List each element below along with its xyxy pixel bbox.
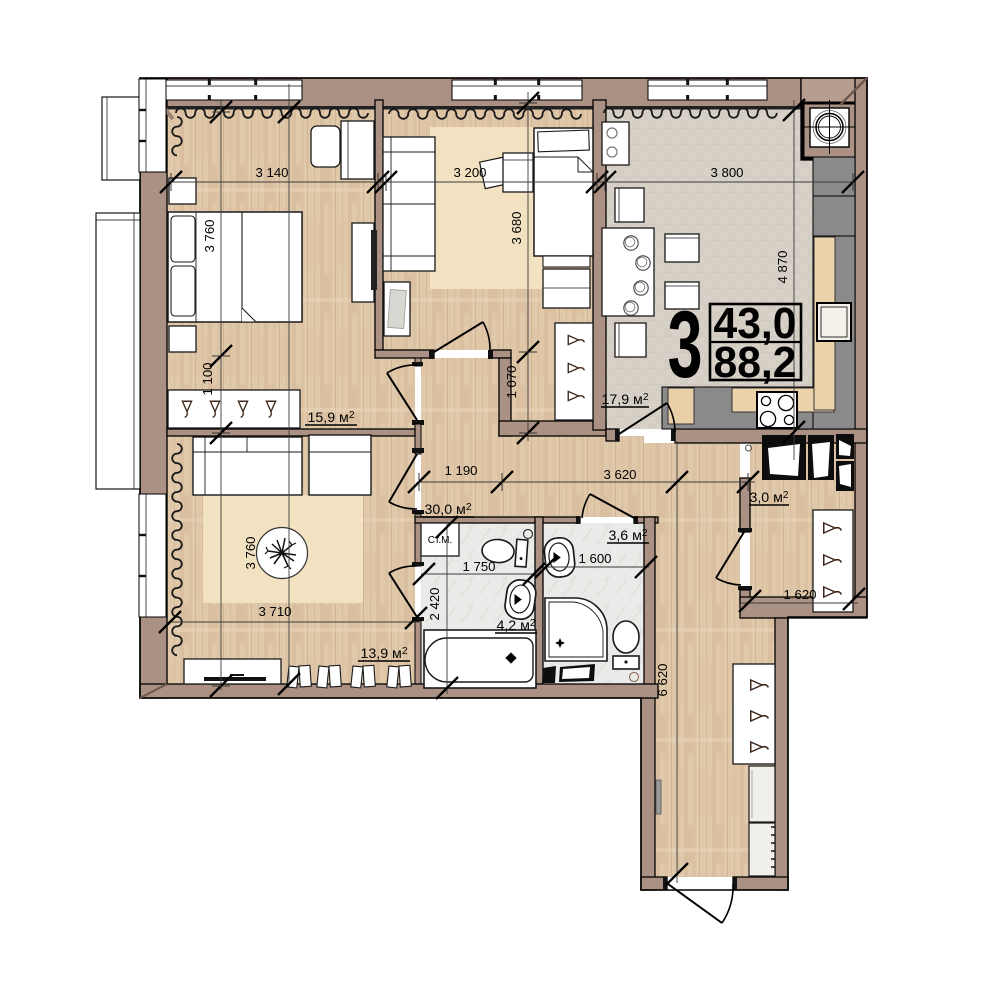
svg-text:3 200: 3 200 [453, 165, 486, 180]
svg-text:2 420: 2 420 [427, 587, 442, 620]
svg-text:17,9 м2: 17,9 м2 [602, 392, 649, 408]
svg-text:1 190: 1 190 [444, 463, 477, 478]
svg-text:15,9 м2: 15,9 м2 [308, 410, 355, 426]
svg-text:1 620: 1 620 [783, 587, 816, 602]
svg-text:3 680: 3 680 [509, 211, 524, 244]
svg-text:3 620: 3 620 [603, 467, 636, 482]
svg-text:3 800: 3 800 [710, 165, 743, 180]
svg-text:6 620: 6 620 [655, 663, 670, 696]
svg-text:3 760: 3 760 [202, 219, 217, 252]
svg-text:4 870: 4 870 [775, 250, 790, 283]
svg-text:1 070: 1 070 [504, 365, 519, 398]
svg-text:1 600: 1 600 [578, 551, 611, 566]
svg-text:3 710: 3 710 [258, 604, 291, 619]
svg-text:13,9 м2: 13,9 м2 [361, 646, 408, 662]
svg-text:3 140: 3 140 [255, 165, 288, 180]
svg-text:1 750: 1 750 [462, 559, 495, 574]
svg-text:3: 3 [668, 292, 703, 398]
svg-text:30,0 м2: 30,0 м2 [425, 502, 472, 518]
svg-text:3 760: 3 760 [243, 536, 258, 569]
svg-text:88,2: 88,2 [713, 338, 796, 387]
svg-text:Ст.М.: Ст.М. [428, 535, 453, 546]
svg-text:1 100: 1 100 [200, 362, 215, 395]
